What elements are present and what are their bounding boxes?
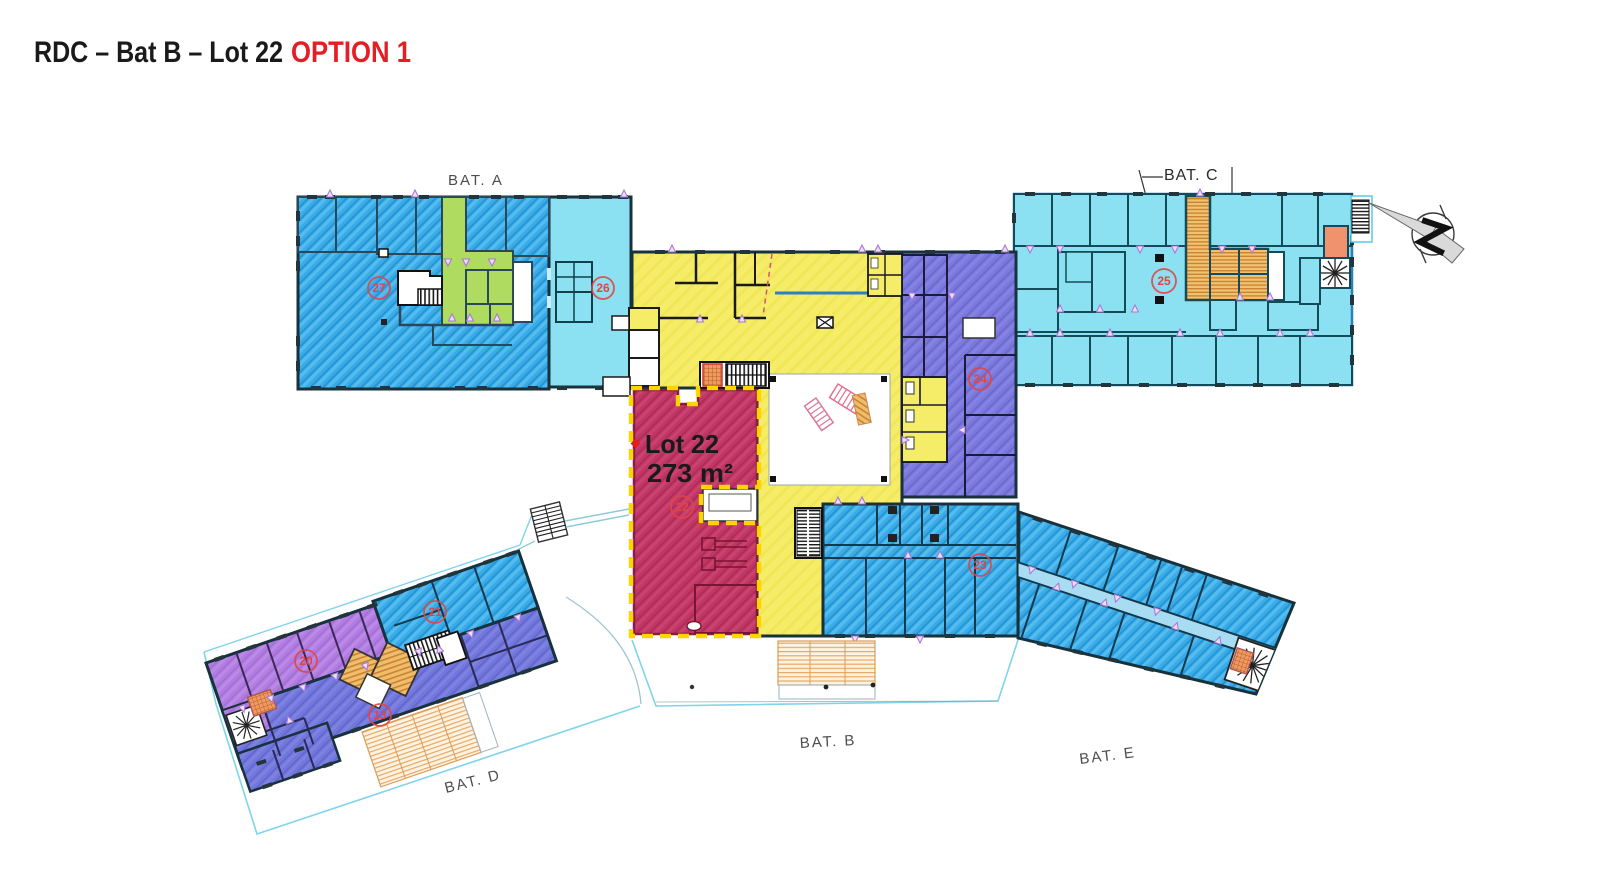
svg-text:OPTION 1: OPTION 1 xyxy=(291,36,411,69)
svg-text:22: 22 xyxy=(675,500,689,514)
svg-text:BAT. B: BAT. B xyxy=(799,732,857,752)
svg-text:BAT. A: BAT. A xyxy=(448,172,504,189)
svg-text:25: 25 xyxy=(1157,274,1171,288)
svg-text:Lot 22: Lot 22 xyxy=(645,429,719,459)
svg-text:13: 13 xyxy=(373,708,387,722)
svg-text:24: 24 xyxy=(973,372,987,386)
svg-text:273 m²: 273 m² xyxy=(647,458,733,488)
svg-text:27: 27 xyxy=(372,281,386,295)
svg-text:20: 20 xyxy=(299,654,313,668)
svg-text:BAT. C: BAT. C xyxy=(1164,167,1219,184)
svg-text:21: 21 xyxy=(428,605,442,619)
svg-text:26: 26 xyxy=(596,281,610,295)
svg-text:23: 23 xyxy=(973,558,987,572)
svg-text:RDC – Bat B – Lot 22: RDC – Bat B – Lot 22 xyxy=(34,36,283,69)
